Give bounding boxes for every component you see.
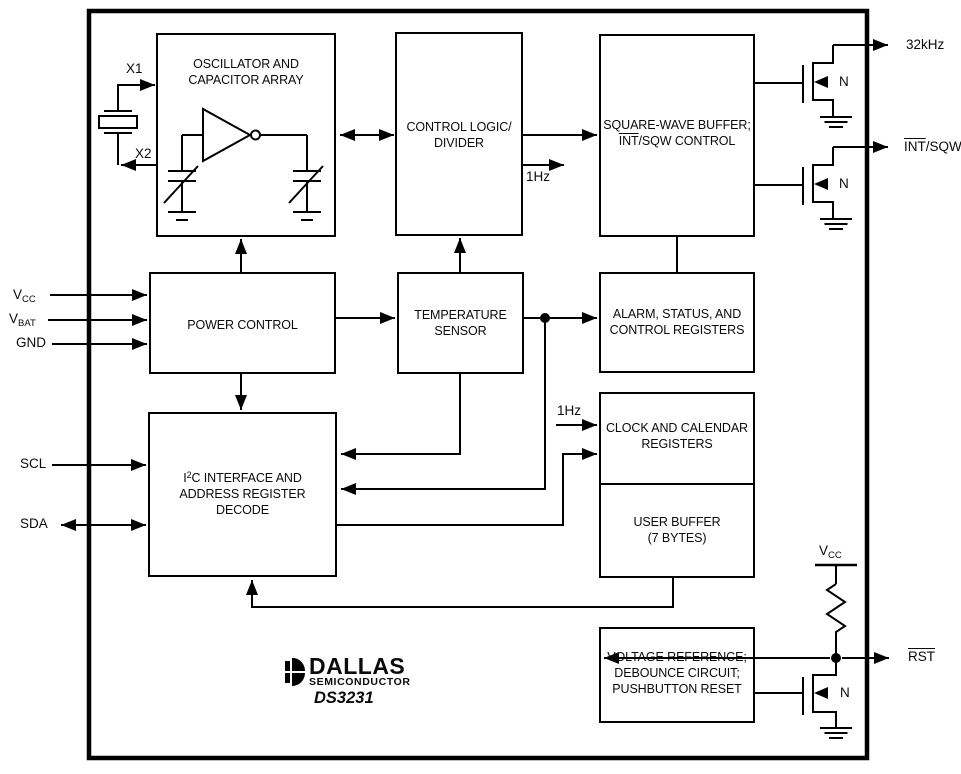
pin-intsqw-label: INT/SQW (904, 139, 961, 154)
signal-1hz-label: 1Hz (526, 169, 550, 184)
sqw-buffer-label: SQUARE-WAVE BUFFER; INT/SQW CONTROL (600, 117, 754, 149)
alarm-registers-label: ALARM, STATUS, AND CONTROL REGISTERS (600, 306, 754, 338)
junction-dot (540, 313, 550, 323)
resistor-icon (827, 584, 845, 658)
nfet-n-label: N (839, 176, 849, 191)
ground-icon (820, 219, 852, 229)
pin-vbat-label: VBAT (9, 311, 36, 329)
pin-x2-label: X2 (135, 146, 152, 161)
inverter-bubble-icon (251, 131, 260, 140)
wire-tempbottom-i2c (341, 373, 460, 454)
crystal-icon (99, 111, 137, 165)
voltage-reference-label: VOLTAGE REFERENCE; DEBOUNCE CIRCUIT; PUS… (600, 649, 754, 697)
pin-gnd-label: GND (16, 335, 46, 350)
pin-scl-label: SCL (20, 456, 46, 471)
dallas-logo-mark-icon (285, 658, 305, 686)
user-buffer-label: USER BUFFER (7 BYTES) (600, 514, 754, 546)
i2c-interface-label: I2C INTERFACE AND ADDRESS REGISTER DECOD… (149, 467, 336, 518)
nfet-n-label: N (840, 685, 850, 700)
nfet-body-arrow-icon (814, 76, 828, 88)
block-diagram: OSCILLATOR AND CAPACITOR ARRAY CONTROL L… (0, 0, 961, 774)
power-control-label: POWER CONTROL (150, 317, 335, 333)
ground-icon (820, 117, 852, 127)
ground-icon (820, 728, 852, 738)
signal-1hz-label: 1Hz (557, 403, 581, 418)
pin-sda-label: SDA (20, 516, 48, 531)
pin-vcc-label: VCC (13, 287, 36, 305)
pin-vcc-pullup-label: VCC (819, 543, 842, 561)
wires (48, 85, 677, 607)
nfet-body-arrow-icon (814, 178, 828, 190)
diagram-linework (0, 0, 961, 774)
pin-x1-label: X1 (126, 61, 143, 76)
nfet-n-label: N (839, 74, 849, 89)
wire-x1 (118, 85, 155, 112)
nfet-body-arrow-icon (814, 687, 828, 699)
wire-userbuffer-i2c (252, 577, 673, 607)
oscillator-label: OSCILLATOR AND CAPACITOR ARRAY (157, 56, 335, 88)
dallas-division-text: SEMICONDUCTOR (309, 676, 411, 688)
temp-sensor-label: TEMPERATURE SENSOR (398, 307, 523, 339)
control-logic-label: CONTROL LOGIC/ DIVIDER (396, 119, 522, 151)
pin-rst-label: RST (908, 649, 935, 664)
clock-registers-label: CLOCK AND CALENDAR REGISTERS (600, 420, 754, 452)
part-number-text: DS3231 (314, 689, 374, 708)
pin-32khz-label: 32kHz (906, 37, 944, 52)
